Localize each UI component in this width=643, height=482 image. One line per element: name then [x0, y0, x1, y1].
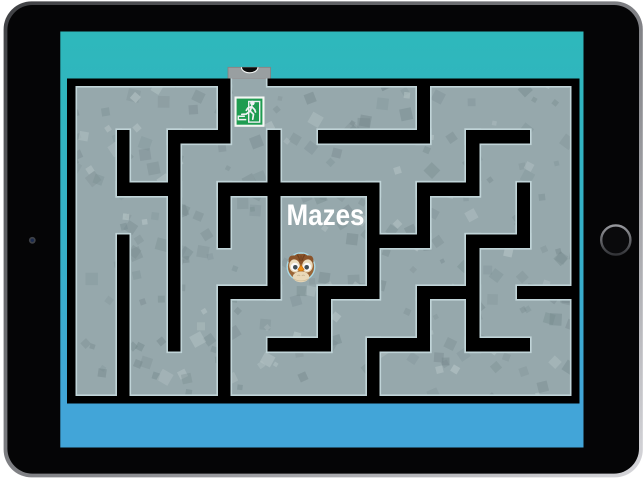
svg-text:Mazes: Mazes — [287, 199, 365, 232]
